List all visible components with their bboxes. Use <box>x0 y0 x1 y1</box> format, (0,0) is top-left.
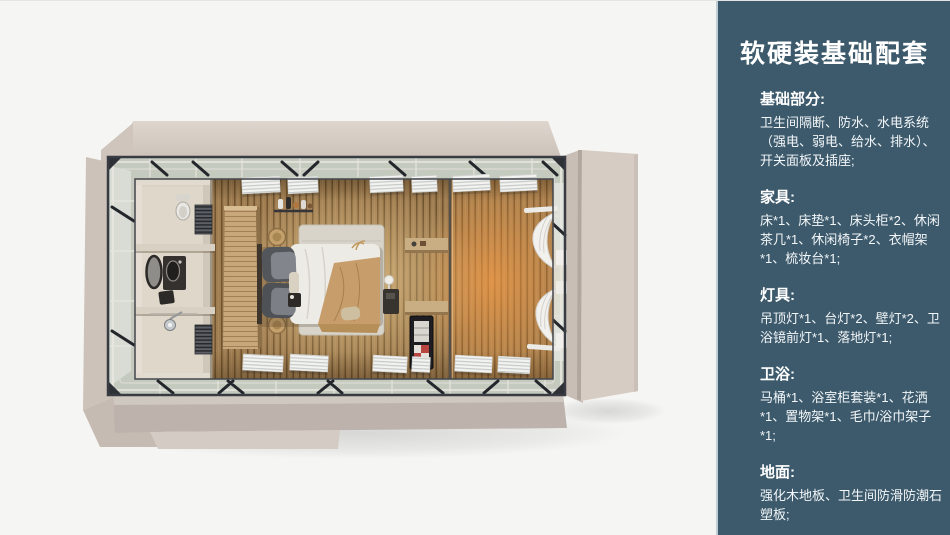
sink <box>167 261 180 281</box>
section-body: 吊顶灯*1、台灯*2、壁灯*2、卫浴镜前灯*1、落地灯*1; <box>760 309 942 347</box>
section-body: 卫生间隔断、防水、水电系统（强电、弱电、给水、排水）、开关面板及插座; <box>760 113 942 170</box>
towel-radiator <box>195 325 212 354</box>
section-heading: 地面: <box>760 464 936 482</box>
accent-pillow <box>340 306 360 321</box>
headboard <box>257 244 262 324</box>
spec-section-lighting: 灯具: 吊顶灯*1、台灯*2、壁灯*2、卫浴镜前灯*1、落地灯*1; <box>760 287 936 347</box>
vanity-stool <box>158 290 175 305</box>
bathroom-pod <box>135 179 215 379</box>
spec-section-foundation: 基础部分: 卫生间隔断、防水、水电系统（强电、弱电、给水、排水）、开关面板及插座… <box>760 91 936 170</box>
sidebar: 软硬装基础配套 基础部分: 卫生间隔断、防水、水电系统（强电、弱电、给水、排水）… <box>716 1 950 535</box>
section-heading: 卫浴: <box>760 366 936 384</box>
section-body: 强化木地板、卫生间防滑防潮石塑板; <box>760 486 942 524</box>
section-heading: 基础部分: <box>760 91 936 109</box>
wall-shelf <box>405 301 448 315</box>
room-render-svg <box>0 1 716 535</box>
section-heading: 灯具: <box>760 287 936 305</box>
slide: 软硬装基础配套 基础部分: 卫生间隔断、防水、水电系统（强电、弱电、给水、排水）… <box>0 0 950 535</box>
section-heading: 家具: <box>760 189 936 207</box>
spec-section-furniture: 家具: 床*1、床垫*1、床头柜*2、休闲茶几*1、休闲椅子*2、衣帽架*1、梳… <box>760 189 936 268</box>
bedside-basket <box>269 229 286 246</box>
section-body: 马桶*1、浴室柜套装*1、花洒*1、置物架*1、毛巾/浴巾架子*1; <box>760 388 942 445</box>
wardrobe-partition <box>223 206 262 349</box>
toilet <box>176 194 190 220</box>
pod-divider-wall <box>135 307 215 314</box>
section-body: 床*1、床垫*1、床头柜*2、休闲茶几*1、休闲椅子*2、衣帽架*1、梳妆台*1… <box>760 211 942 268</box>
towel-radiator <box>195 205 212 234</box>
page-title: 软硬装基础配套 <box>740 39 936 69</box>
room-render <box>0 1 716 535</box>
spec-section-flooring: 地面: 强化木地板、卫生间防滑防潮石塑板; <box>760 464 936 524</box>
bed-tray <box>288 293 301 307</box>
wall-shelf <box>405 238 448 253</box>
swing-wall-panel <box>581 150 638 401</box>
pod-divider-wall <box>135 244 215 251</box>
side-table <box>383 289 399 314</box>
spec-section-bathroom: 卫浴: 马桶*1、浴室柜套装*1、花洒*1、置物架*1、毛巾/浴巾架子*1; <box>760 366 936 445</box>
vanity-mirror <box>147 256 162 288</box>
